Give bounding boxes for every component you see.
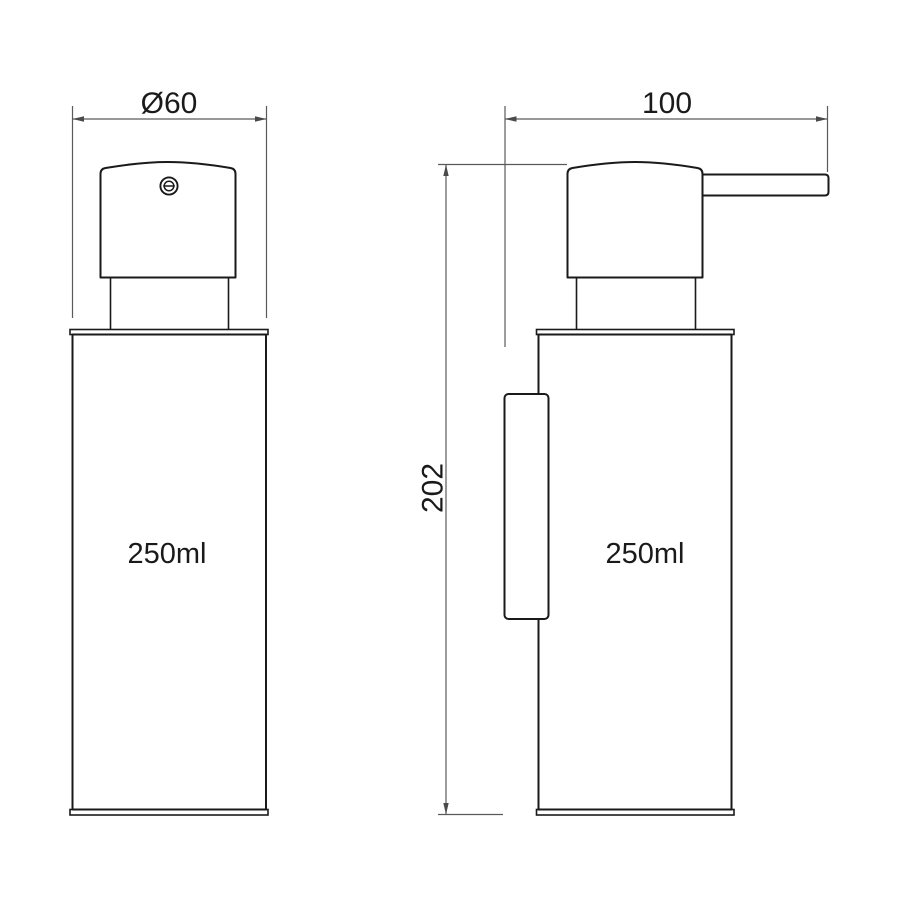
width-arrow-right [816,116,828,121]
width-dimension-label: 100 [642,87,692,120]
width-arrow-left [505,116,517,121]
wall-mount-bracket [505,394,549,619]
height-dimension-label: 202 [417,463,450,513]
diameter-arrow-right [255,116,267,121]
dispenser-drawing: 250ml 250ml Ø60 100 [0,0,900,900]
side-pump-head [568,162,703,278]
front-view: 250ml [70,162,268,815]
dispenser-spout [703,175,829,196]
side-capacity-label: 250ml [606,538,685,570]
diameter-arrow-left [73,116,85,121]
side-view: 250ml [505,162,829,815]
front-bottle-body [73,335,267,810]
front-pump-head [101,162,236,278]
side-bottle-body [539,335,732,810]
front-capacity-label: 250ml [128,538,207,570]
height-arrow-bottom [443,803,448,815]
technical-drawing-canvas: 250ml 250ml Ø60 100 [0,0,900,900]
diameter-dimension-label: Ø60 [141,87,198,120]
height-arrow-top [443,165,448,177]
